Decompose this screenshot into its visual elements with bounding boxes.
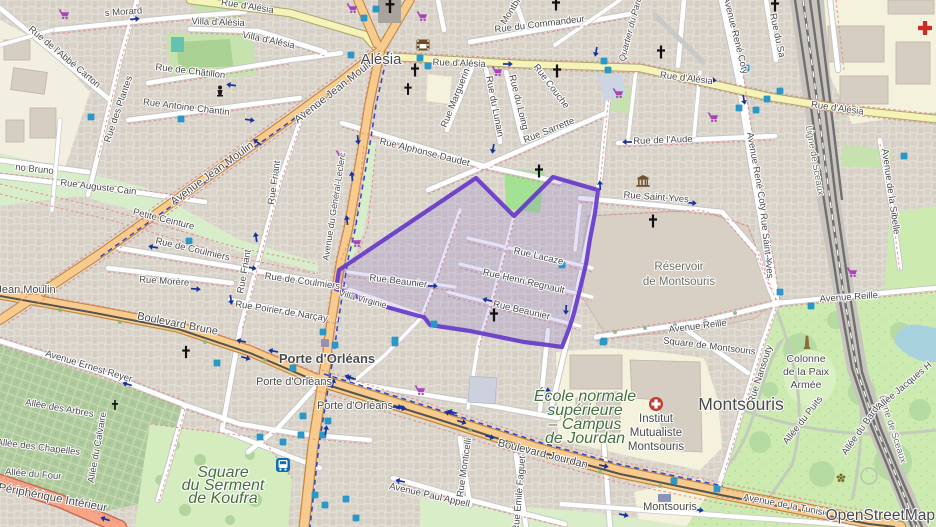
svg-text:Armée: Armée — [791, 379, 822, 391]
svg-text:de Koufra: de Koufra — [188, 490, 257, 507]
svg-text:Porte d'Orléans: Porte d'Orléans — [256, 376, 333, 388]
svg-text:Mutualiste: Mutualiste — [630, 427, 682, 439]
svg-text:Villa d'Alésia: Villa d'Alésia — [191, 16, 245, 29]
svg-text:Porte d'Orléans: Porte d'Orléans — [317, 400, 394, 412]
svg-text:Porte d'Orléans: Porte d'Orléans — [279, 351, 375, 366]
svg-text:de Jourdan: de Jourdan — [545, 430, 625, 447]
svg-text:de la Paix: de la Paix — [783, 366, 830, 378]
svg-text:Rue de l'Aude: Rue de l'Aude — [633, 134, 693, 147]
svg-text:Montsouris: Montsouris — [643, 501, 697, 513]
svg-text:Rue d'Alésia: Rue d'Alésia — [432, 57, 486, 70]
svg-text:de Montsouris: de Montsouris — [643, 276, 715, 288]
svg-text:Colonne: Colonne — [786, 353, 825, 365]
svg-text:Alésia: Alésia — [361, 51, 403, 68]
svg-text:OpenStreetMap: OpenStreetMap — [826, 507, 935, 524]
svg-text:Montsouris: Montsouris — [628, 441, 684, 453]
svg-text:Montsouris: Montsouris — [698, 394, 784, 414]
svg-text:Jean Moulin: Jean Moulin — [0, 284, 56, 296]
svg-text:Réservoir: Réservoir — [654, 261, 703, 273]
svg-text:Institut: Institut — [639, 413, 674, 425]
